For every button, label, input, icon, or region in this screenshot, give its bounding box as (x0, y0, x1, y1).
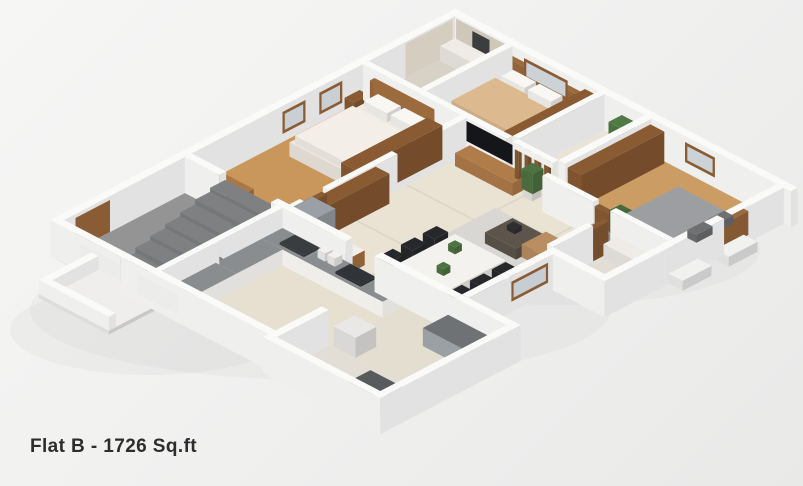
floor-plan-svg (0, 0, 803, 486)
flat-area-label: Flat B - 1726 Sq.ft (30, 436, 197, 458)
floor-plan-render: Flat B - 1726 Sq.ft (0, 0, 803, 486)
plant (522, 163, 544, 194)
